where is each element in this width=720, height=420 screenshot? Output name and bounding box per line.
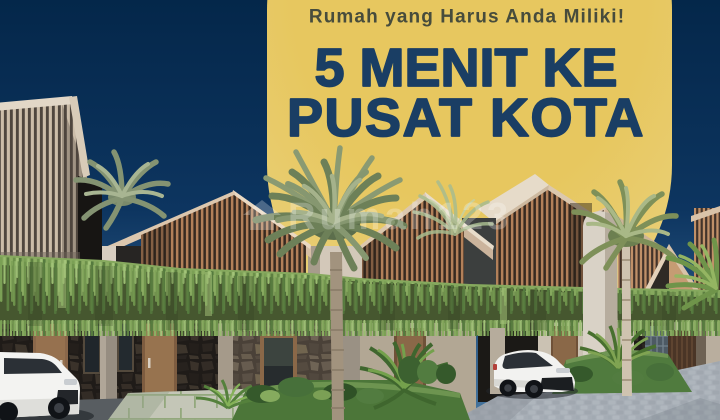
- svg-text:Rumah123: Rumah123: [288, 196, 512, 238]
- svg-text:PUSAT KOTA: PUSAT KOTA: [287, 88, 645, 148]
- svg-text:Rumah yang Harus Anda Miliki!: Rumah yang Harus Anda Miliki!: [309, 7, 625, 28]
